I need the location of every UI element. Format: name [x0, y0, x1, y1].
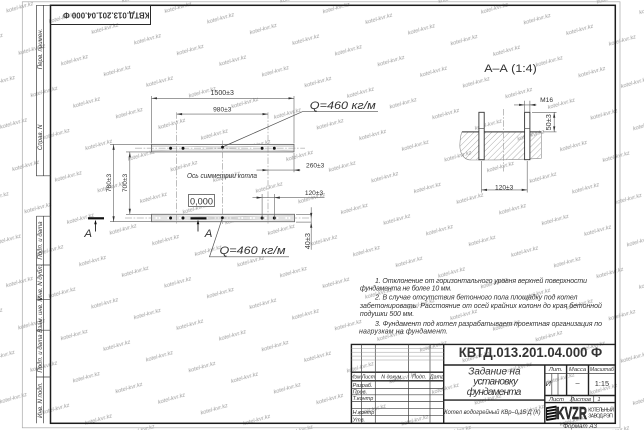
svg-text:Перв. примен.: Перв. примен.	[37, 29, 44, 70]
svg-text:Разраб.: Разраб.	[353, 383, 373, 389]
svg-text:забетонировать. Расстояние от: забетонировать. Расстояние от осей крайн…	[359, 302, 602, 310]
svg-text:подушки 500 мм.: подушки 500 мм.	[360, 310, 414, 318]
svg-text:Т.контр: Т.контр	[353, 396, 374, 402]
svg-text:Q=460 кг/м: Q=460 кг/м	[310, 100, 377, 112]
svg-text:Q=460 кг/м: Q=460 кг/м	[220, 245, 287, 257]
svg-text:М16: М16	[540, 97, 553, 104]
svg-text:Подп.: Подп.	[412, 375, 426, 381]
svg-text:И: И	[546, 379, 552, 388]
svg-text:Справ. N: Справ. N	[37, 124, 44, 150]
svg-text:980±3: 980±3	[213, 106, 232, 113]
svg-text:1:15: 1:15	[595, 379, 609, 388]
svg-text:1. Отклонение от горизонтально: 1. Отклонение от горизонтального уровня …	[375, 277, 587, 285]
svg-text:А–А (1:4): А–А (1:4)	[484, 63, 537, 75]
svg-text:Масштаб: Масштаб	[590, 367, 615, 373]
svg-text:Изм.: Изм.	[351, 375, 362, 381]
svg-text:Инв. N дубл.: Инв. N дубл.	[37, 265, 44, 300]
svg-text:Дата: Дата	[429, 375, 444, 381]
svg-text:0,000: 0,000	[190, 196, 213, 206]
svg-text:ЗАВОД-РЭП: ЗАВОД-РЭП	[588, 414, 613, 420]
svg-text:Подп. и дата: Подп. и дата	[37, 334, 44, 373]
svg-text:120±3: 120±3	[305, 190, 324, 197]
svg-text:120±3: 120±3	[495, 184, 514, 191]
svg-text:Пров.: Пров.	[353, 390, 368, 396]
svg-text:Масса: Масса	[569, 367, 587, 373]
svg-text:фундамента: фундамента	[467, 386, 522, 398]
svg-text:нагрузкам на фундамент.: нагрузкам на фундамент.	[359, 327, 448, 335]
svg-text:Котел водогрейный КВр–0,15 Д (: Котел водогрейный КВр–0,15 Д (К)	[444, 409, 540, 416]
svg-text:КВТД.013.201.04.000 Ф: КВТД.013.201.04.000 Ф	[63, 11, 150, 21]
svg-text:Лист: Лист	[361, 375, 376, 381]
svg-text:260±3: 260±3	[306, 162, 325, 169]
svg-text:40±3: 40±3	[303, 233, 312, 249]
svg-text:780±3: 780±3	[106, 174, 113, 193]
svg-text:Ось симметрии котла: Ось симметрии котла	[187, 171, 257, 180]
svg-text:3. Фундамент под котел разраба: 3. Фундамент под котел разрабатывает про…	[375, 320, 602, 328]
svg-text:А: А	[83, 228, 92, 240]
svg-text:1: 1	[597, 397, 600, 403]
svg-text:1500±3: 1500±3	[211, 90, 234, 97]
svg-text:фундамента не более 10 мм.: фундамента не более 10 мм.	[360, 285, 452, 293]
svg-text:KVZR: KVZR	[557, 403, 588, 423]
svg-text:Формат А3: Формат А3	[563, 423, 597, 430]
svg-text:КВТД.013.201.04.000 Ф: КВТД.013.201.04.000 Ф	[459, 345, 603, 360]
svg-text:Инв. N подл.: Инв. N подл.	[37, 382, 44, 418]
svg-text:N докум.: N докум.	[381, 375, 402, 381]
svg-text:КОТЕЛЬНЫЙ: КОТЕЛЬНЫЙ	[588, 406, 614, 414]
svg-text:установку: установку	[472, 376, 519, 387]
svg-text:Взам. инв. N: Взам. инв. N	[37, 297, 44, 333]
svg-text:Подп. и дата: Подп. и дата	[37, 221, 44, 260]
svg-text:Утв.: Утв.	[352, 417, 366, 423]
svg-text:Н.контр: Н.контр	[353, 410, 375, 416]
svg-text:50±3: 50±3	[544, 114, 553, 130]
svg-text:А: А	[204, 228, 213, 240]
svg-text:2. В случае отсутствия бетонно: 2. В случае отсутствия бетонного пола пл…	[374, 294, 577, 302]
svg-text:Лит.: Лит.	[548, 367, 563, 373]
svg-text:700±3: 700±3	[122, 174, 129, 193]
